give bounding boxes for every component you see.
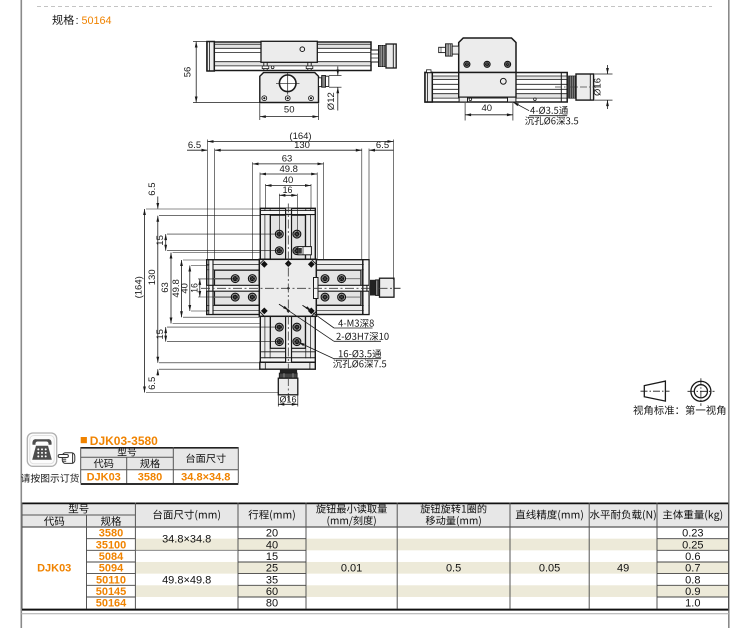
svg-text:5094: 5094 [99,563,124,575]
svg-text:34.8×34.8: 34.8×34.8 [181,471,230,483]
svg-text:40: 40 [266,539,278,551]
svg-text:63: 63 [160,282,171,293]
svg-text:16: 16 [190,283,200,293]
svg-text:6.5: 6.5 [188,140,201,151]
svg-text:6.5: 6.5 [147,182,158,195]
svg-text:0.9: 0.9 [685,586,700,598]
svg-text:3580: 3580 [99,528,123,540]
svg-text:Ø12: Ø12 [326,92,337,110]
svg-text:40: 40 [482,103,493,114]
svg-text:Ø16: Ø16 [593,78,604,96]
svg-text:0.5: 0.5 [446,563,461,575]
svg-text:50110: 50110 [96,574,126,586]
svg-text:DJK03: DJK03 [87,471,121,483]
svg-text:0.8: 0.8 [685,574,700,586]
svg-text:(164): (164) [133,276,144,298]
svg-text:5084: 5084 [99,551,124,563]
svg-text:0.7: 0.7 [685,563,700,575]
svg-text:0.05: 0.05 [539,563,560,575]
svg-text:15: 15 [266,551,278,563]
svg-text:35: 35 [266,574,278,586]
svg-text:6.5: 6.5 [376,140,389,151]
svg-text:49.8: 49.8 [279,164,298,175]
svg-text:15: 15 [155,235,166,246]
svg-text:3580: 3580 [138,471,162,483]
svg-text:130: 130 [147,269,158,285]
svg-text:60: 60 [266,586,278,598]
svg-text:0.25: 0.25 [682,539,703,551]
svg-text:35100: 35100 [96,539,127,551]
svg-text:6.5: 6.5 [147,377,158,390]
svg-text:15: 15 [155,329,166,340]
svg-text:DJK03-3580: DJK03-3580 [90,434,158,448]
svg-text:DJK03: DJK03 [37,563,71,575]
svg-text:56: 56 [183,67,194,78]
svg-text:50145: 50145 [96,586,127,598]
svg-text:1.0: 1.0 [685,598,700,610]
svg-text:50164: 50164 [96,598,127,610]
svg-text:49: 49 [617,563,629,575]
svg-text::: : [76,15,79,27]
svg-text:50164: 50164 [82,15,112,27]
svg-text:0.23: 0.23 [682,528,703,540]
svg-text:20: 20 [266,528,278,540]
svg-text:50: 50 [284,105,295,116]
svg-text:130: 130 [294,140,310,151]
svg-text:0.6: 0.6 [685,551,700,563]
svg-text:0.01: 0.01 [341,563,362,575]
svg-text:80: 80 [266,598,278,610]
svg-text:34.8×34.8: 34.8×34.8 [162,534,211,546]
svg-text:16: 16 [283,185,293,195]
svg-text:25: 25 [266,563,278,575]
svg-text:Ø16: Ø16 [279,394,296,404]
svg-text:49.8×49.8: 49.8×49.8 [162,574,211,586]
